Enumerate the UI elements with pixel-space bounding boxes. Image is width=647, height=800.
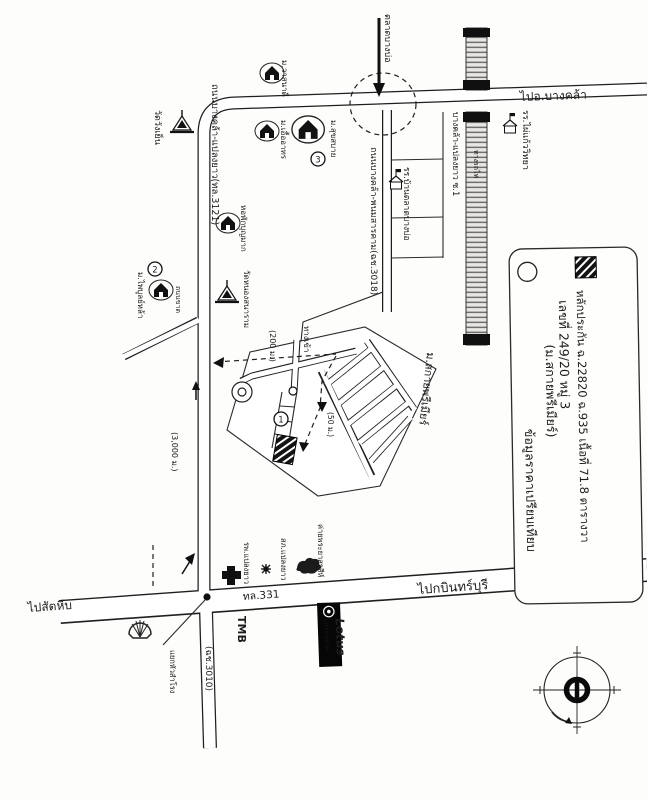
label-market: ตลาดบางบ่อ [382,14,392,63]
house-icon-uea [255,121,279,141]
label-hua-samrong: แยกหัวสำโรง [168,650,177,694]
cul-de-sac [232,382,252,402]
house-icon-suk [292,116,324,143]
label-school-phaikaew: รร.ไผ่แก้ววิทยา [520,110,531,170]
map-canvas: ทางรถไฟ [0,0,647,800]
lotus-label: Lotus [333,618,348,656]
label-dorm: หอพักบุญมาก [239,205,248,252]
label-police: สภ.แปลงยาว [279,538,288,581]
compass-rose [533,646,621,734]
legend-line3: (ม.สกายพรีเมียร์) [543,344,560,437]
label-tl3121: ถนนบางคล้า-แปลงยาว(ทล.3121) [209,84,220,225]
temple-icon-wangyen [170,110,194,132]
shell-gas-icon [129,620,151,638]
hospital-cross-icon [222,566,241,585]
label-d3000: (3,000 ม.) [170,432,179,472]
svg-text:3: 3 [315,156,320,166]
label-mu-suk: ม.สุขสบาย [329,120,338,157]
label-wat-nong: วัดหนองสนาราม [242,270,251,328]
school-icon-phaikaew [503,113,517,133]
label-cc3010: (ฉช.3010) [203,646,213,691]
lotus-supercenter-logo: Lotus SUPERCENTER [317,602,348,667]
tmb-bank-label: TMB [235,616,248,643]
police-station-icon [261,564,271,574]
svg-text:2: 2 [152,266,157,276]
label-cc3018: ถนนบางคล้า-พนมสารคาม(ฉช.3018) [368,147,379,295]
comparable-marker-3: 3 [311,152,325,166]
house-icon-phai [149,280,173,300]
label-mu-wasanadee: ม.วาสนาดี [280,60,289,97]
svg-text:1: 1 [278,416,283,426]
label-thanon-khat: ถนนขาด [174,286,182,313]
label-entrance: ทางเข้า [302,326,311,352]
label-d200: (200 ม.) [268,330,277,362]
comparable-marker-2: 2 [148,262,162,276]
comparable-marker-1: 1 [274,412,288,426]
subject-property-hatched [273,434,297,464]
railway-line: ทางรถไฟ [463,28,490,345]
gate-marker [289,387,297,395]
label-camp: ค่ายพระยาสุรสีห์ [316,524,325,577]
label-to-bangkhla: ไปอ.บางคล้า [519,88,587,104]
legend-collateral-symbol [575,257,596,278]
scanned-map-page: ทางรถไฟ [0,0,647,800]
label-d50: (50 ม.) [326,412,335,437]
legend-box: หลักประกัน ฉ.22820 ฉ.935 เนื้อที่ 71.8 ต… [509,247,643,604]
label-school-taladbangbo: รร.บ้านตลาดบางบ่อ [401,167,412,241]
label-wat-wangyen: วัดวังเย็น [152,110,165,145]
label-mu-uea: ม.เอื้ออาทร [279,120,290,160]
temple-icon-nong [215,280,239,302]
label-soi1: บางคล้า-แปลงยาว ซ.1 [450,112,461,196]
railway-label: ทางรถไฟ [472,150,481,178]
label-tl331: ทล.331 [242,588,279,603]
label-mu-phai: ม.ไพบูลย์หล้า [135,272,146,318]
road-direction-arrows [153,381,200,588]
label-hospital: รพ.แปลงยาว [242,542,251,584]
